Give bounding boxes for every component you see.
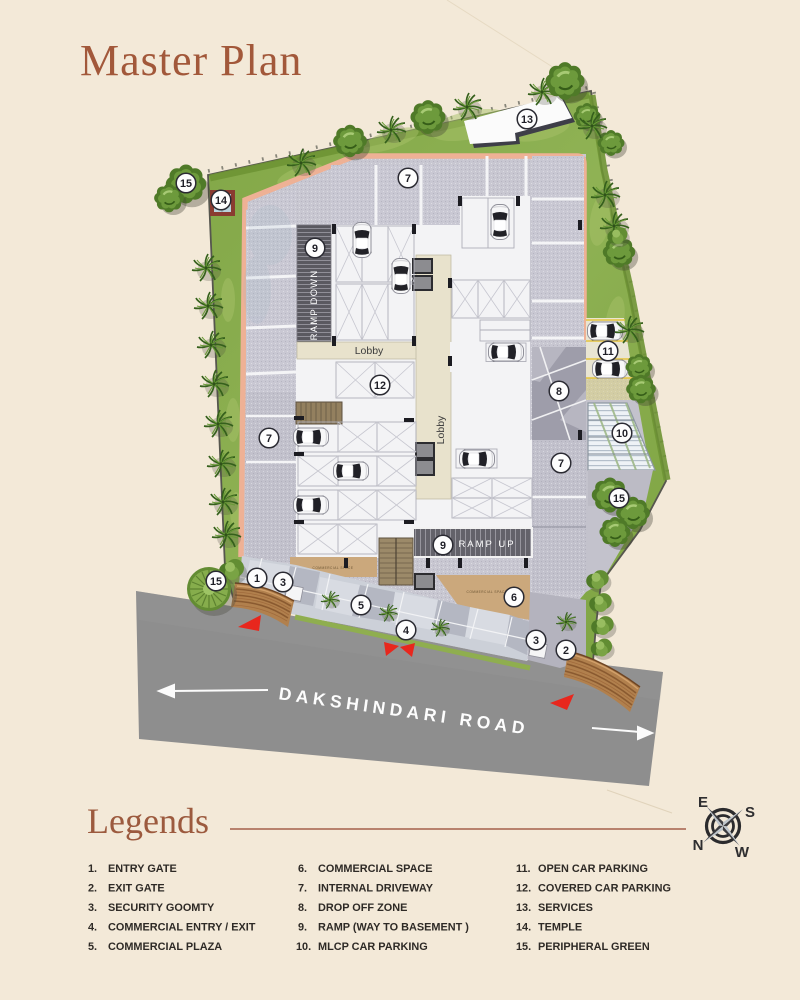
svg-text:N: N xyxy=(693,837,704,854)
svg-text:W: W xyxy=(735,844,750,861)
svg-text:7: 7 xyxy=(266,433,272,445)
svg-text:COVERED CAR PARKING: COVERED CAR PARKING xyxy=(538,883,671,895)
svg-text:SERVICES: SERVICES xyxy=(538,902,593,914)
svg-text:8: 8 xyxy=(556,386,562,398)
svg-text:15: 15 xyxy=(180,178,192,190)
svg-text:14: 14 xyxy=(215,195,227,207)
svg-text:5: 5 xyxy=(358,600,364,612)
svg-text:13.: 13. xyxy=(516,902,531,914)
svg-text:COMMERCIAL PLAZA: COMMERCIAL PLAZA xyxy=(108,941,222,953)
svg-text:1: 1 xyxy=(254,573,260,585)
svg-text:13: 13 xyxy=(521,114,533,126)
svg-text:7: 7 xyxy=(405,173,411,185)
svg-text:OPEN CAR PARKING: OPEN CAR PARKING xyxy=(538,863,648,875)
svg-text:1.: 1. xyxy=(88,863,97,875)
svg-text:E: E xyxy=(698,794,708,811)
svg-text:6: 6 xyxy=(511,592,517,604)
svg-text:9.: 9. xyxy=(298,922,307,934)
svg-text:8.: 8. xyxy=(298,902,307,914)
svg-text:10.: 10. xyxy=(296,941,311,953)
svg-text:3.: 3. xyxy=(88,902,97,914)
svg-text:S: S xyxy=(745,804,755,821)
svg-text:COMMERCIAL SPACE: COMMERCIAL SPACE xyxy=(467,590,508,594)
svg-text:12: 12 xyxy=(374,380,386,392)
svg-text:14.: 14. xyxy=(516,922,531,934)
svg-text:9: 9 xyxy=(312,243,318,255)
svg-text:RAMP UP: RAMP UP xyxy=(458,539,515,550)
svg-text:5.: 5. xyxy=(88,941,97,953)
svg-text:6.: 6. xyxy=(298,863,307,875)
svg-text:15.: 15. xyxy=(516,941,531,953)
svg-text:4: 4 xyxy=(403,625,409,637)
svg-text:COMMERCIAL SPACE: COMMERCIAL SPACE xyxy=(318,863,433,875)
svg-text:RAMP DOWN: RAMP DOWN xyxy=(309,270,320,341)
svg-text:TEMPLE: TEMPLE xyxy=(538,922,582,934)
svg-text:RAMP (WAY TO BASEMENT ): RAMP (WAY TO BASEMENT ) xyxy=(318,922,469,934)
svg-text:COMMERCIAL ENTRY / EXIT: COMMERCIAL ENTRY / EXIT xyxy=(108,922,256,934)
svg-text:EXIT GATE: EXIT GATE xyxy=(108,883,165,895)
svg-text:SECURITY GOOMTY: SECURITY GOOMTY xyxy=(108,902,215,914)
svg-text:10: 10 xyxy=(616,428,628,440)
svg-text:11.: 11. xyxy=(516,863,531,875)
svg-text:DROP OFF ZONE: DROP OFF ZONE xyxy=(318,902,407,914)
svg-text:11: 11 xyxy=(602,346,613,358)
svg-text:PERIPHERAL GREEN: PERIPHERAL GREEN xyxy=(538,941,650,953)
svg-text:2: 2 xyxy=(563,645,569,657)
svg-text:3: 3 xyxy=(533,635,539,647)
svg-text:9: 9 xyxy=(440,540,446,552)
svg-text:Master Plan: Master Plan xyxy=(80,36,302,85)
svg-text:3: 3 xyxy=(280,577,286,589)
svg-text:12.: 12. xyxy=(516,883,531,895)
svg-text:Lobby: Lobby xyxy=(435,415,447,444)
svg-text:7: 7 xyxy=(558,458,564,470)
svg-text:Lobby: Lobby xyxy=(355,345,384,357)
svg-text:INTERNAL DRIVEWAY: INTERNAL DRIVEWAY xyxy=(318,883,434,895)
svg-text:Legends: Legends xyxy=(87,801,209,841)
svg-text:MLCP CAR PARKING: MLCP CAR PARKING xyxy=(318,941,428,953)
svg-text:7.: 7. xyxy=(298,883,307,895)
svg-text:15: 15 xyxy=(613,493,625,505)
svg-text:15: 15 xyxy=(210,576,222,588)
svg-text:ENTRY GATE: ENTRY GATE xyxy=(108,863,177,875)
svg-text:2.: 2. xyxy=(88,883,97,895)
svg-text:4.: 4. xyxy=(88,922,97,934)
